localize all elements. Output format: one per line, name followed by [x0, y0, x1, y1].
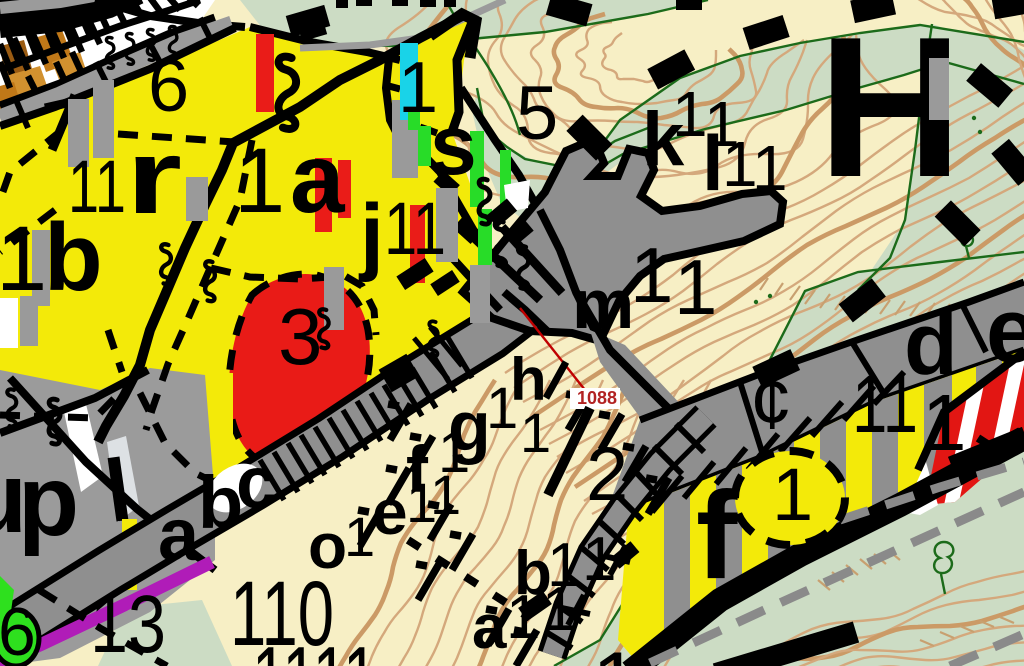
- svg-text:1: 1: [922, 378, 967, 467]
- svg-text:j: j: [358, 187, 384, 283]
- svg-text:u: u: [0, 442, 27, 554]
- svg-text:e: e: [986, 280, 1024, 382]
- svg-text:1: 1: [592, 635, 640, 666]
- svg-text:11: 11: [384, 187, 446, 270]
- svg-text:a: a: [472, 593, 507, 662]
- svg-text:1111: 1111: [252, 628, 378, 666]
- svg-text:1088: 1088: [577, 388, 617, 408]
- svg-text:5: 5: [516, 71, 558, 156]
- svg-text:e: e: [372, 476, 408, 548]
- svg-text:1: 1: [772, 453, 813, 536]
- svg-text:13: 13: [90, 579, 166, 666]
- svg-text:c: c: [236, 441, 277, 524]
- svg-text:1: 1: [506, 583, 540, 652]
- svg-text:1: 1: [398, 48, 438, 128]
- svg-text:1: 1: [430, 463, 461, 526]
- svg-text:1: 1: [486, 376, 518, 441]
- svg-text:r: r: [126, 118, 182, 236]
- svg-text:1: 1: [234, 130, 285, 232]
- svg-text:1: 1: [520, 401, 551, 464]
- svg-text:l: l: [702, 119, 724, 207]
- svg-text:¢: ¢: [750, 360, 792, 445]
- svg-text:1: 1: [674, 243, 717, 331]
- svg-text:1: 1: [0, 208, 47, 310]
- svg-text:6: 6: [0, 594, 36, 666]
- svg-text:a: a: [158, 493, 200, 576]
- svg-text:f: f: [696, 467, 738, 605]
- svg-text:a: a: [290, 123, 346, 233]
- svg-text:p: p: [18, 445, 79, 557]
- svg-text:3: 3: [278, 292, 323, 381]
- svg-text:2: 2: [586, 432, 628, 517]
- svg-text:1: 1: [752, 132, 788, 204]
- svg-text:11: 11: [68, 145, 126, 228]
- svg-text:m: m: [572, 265, 634, 343]
- svg-text:1: 1: [630, 231, 673, 319]
- svg-text:6: 6: [148, 44, 189, 127]
- svg-text:11: 11: [852, 359, 918, 450]
- svg-text:1: 1: [344, 505, 375, 568]
